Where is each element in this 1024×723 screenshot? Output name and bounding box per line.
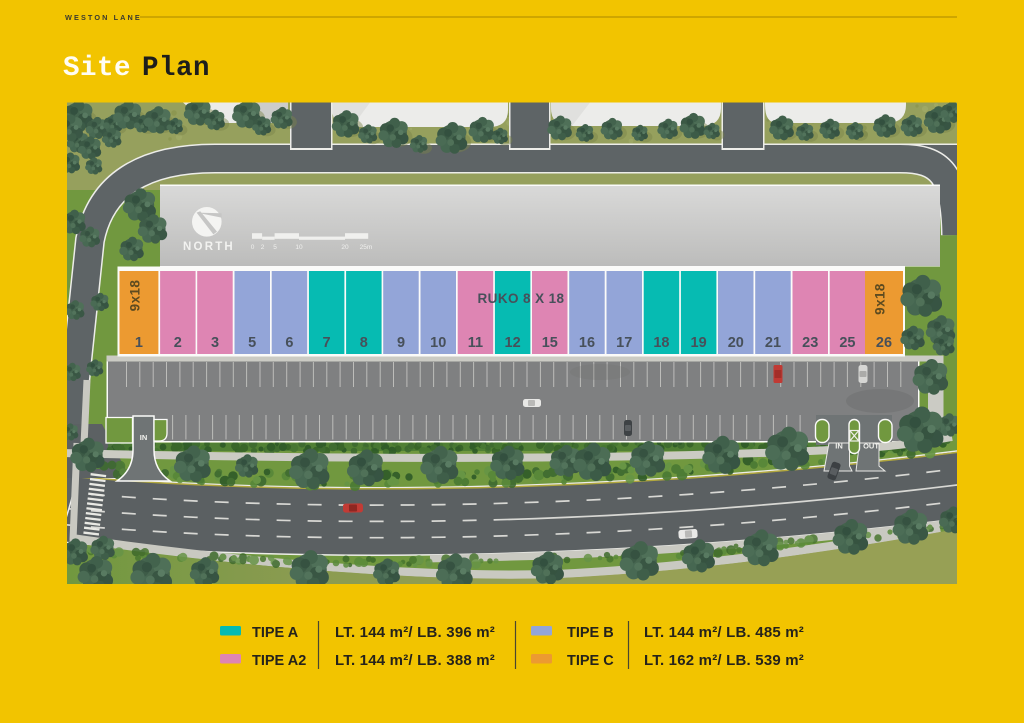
svg-text:WESTON LANE: WESTON LANE (65, 13, 142, 22)
svg-text:18: 18 (653, 335, 669, 351)
svg-text:25m: 25m (360, 244, 373, 251)
svg-text:1: 1 (135, 335, 143, 351)
svg-text:0: 0 (251, 244, 255, 251)
svg-text:LT. 144 m²/ LB. 485 m²: LT. 144 m²/ LB. 485 m² (644, 624, 804, 641)
svg-text:LT. 162 m²/ LB. 539 m²: LT. 162 m²/ LB. 539 m² (644, 652, 804, 669)
svg-text:LT. 144 m²/ LB. 396 m²: LT. 144 m²/ LB. 396 m² (335, 624, 495, 641)
svg-text:20: 20 (728, 335, 744, 351)
svg-text:20: 20 (341, 244, 349, 251)
svg-text:8: 8 (360, 335, 368, 351)
svg-text:TIPE A2: TIPE A2 (252, 653, 306, 669)
svg-text:TIPE B: TIPE B (567, 625, 614, 641)
svg-text:LT. 144 m²/ LB. 388 m²: LT. 144 m²/ LB. 388 m² (335, 652, 495, 669)
svg-text:15: 15 (542, 335, 558, 351)
svg-text:5: 5 (273, 244, 277, 251)
svg-text:TIPE C: TIPE C (567, 653, 614, 669)
svg-text:9x18: 9x18 (873, 283, 888, 315)
svg-text:9: 9 (397, 335, 405, 351)
svg-text:21: 21 (765, 335, 781, 351)
svg-text:10: 10 (295, 244, 303, 251)
svg-text:IN: IN (140, 433, 148, 442)
svg-text:10: 10 (430, 335, 446, 351)
svg-text:2: 2 (261, 244, 265, 251)
svg-text:11: 11 (468, 335, 483, 351)
svg-text:19: 19 (691, 335, 707, 351)
svg-text:RUKO 8 X 18: RUKO 8 X 18 (478, 291, 565, 306)
svg-text:17: 17 (616, 335, 632, 351)
svg-text:7: 7 (323, 335, 331, 351)
svg-text:25: 25 (839, 335, 855, 351)
svg-text:3: 3 (211, 335, 219, 351)
svg-text:23: 23 (802, 335, 818, 351)
svg-text:9x18: 9x18 (128, 280, 143, 312)
svg-text:26: 26 (876, 335, 892, 351)
svg-text:16: 16 (579, 335, 595, 351)
svg-text:NORTH: NORTH (183, 241, 235, 253)
svg-text:2: 2 (174, 335, 182, 351)
svg-text:TIPE A: TIPE A (252, 625, 299, 641)
svg-text:12: 12 (505, 335, 521, 351)
svg-text:6: 6 (285, 335, 293, 351)
svg-text:IN: IN (835, 442, 843, 451)
svg-text:5: 5 (248, 335, 256, 351)
svg-text:OUT: OUT (863, 442, 879, 451)
